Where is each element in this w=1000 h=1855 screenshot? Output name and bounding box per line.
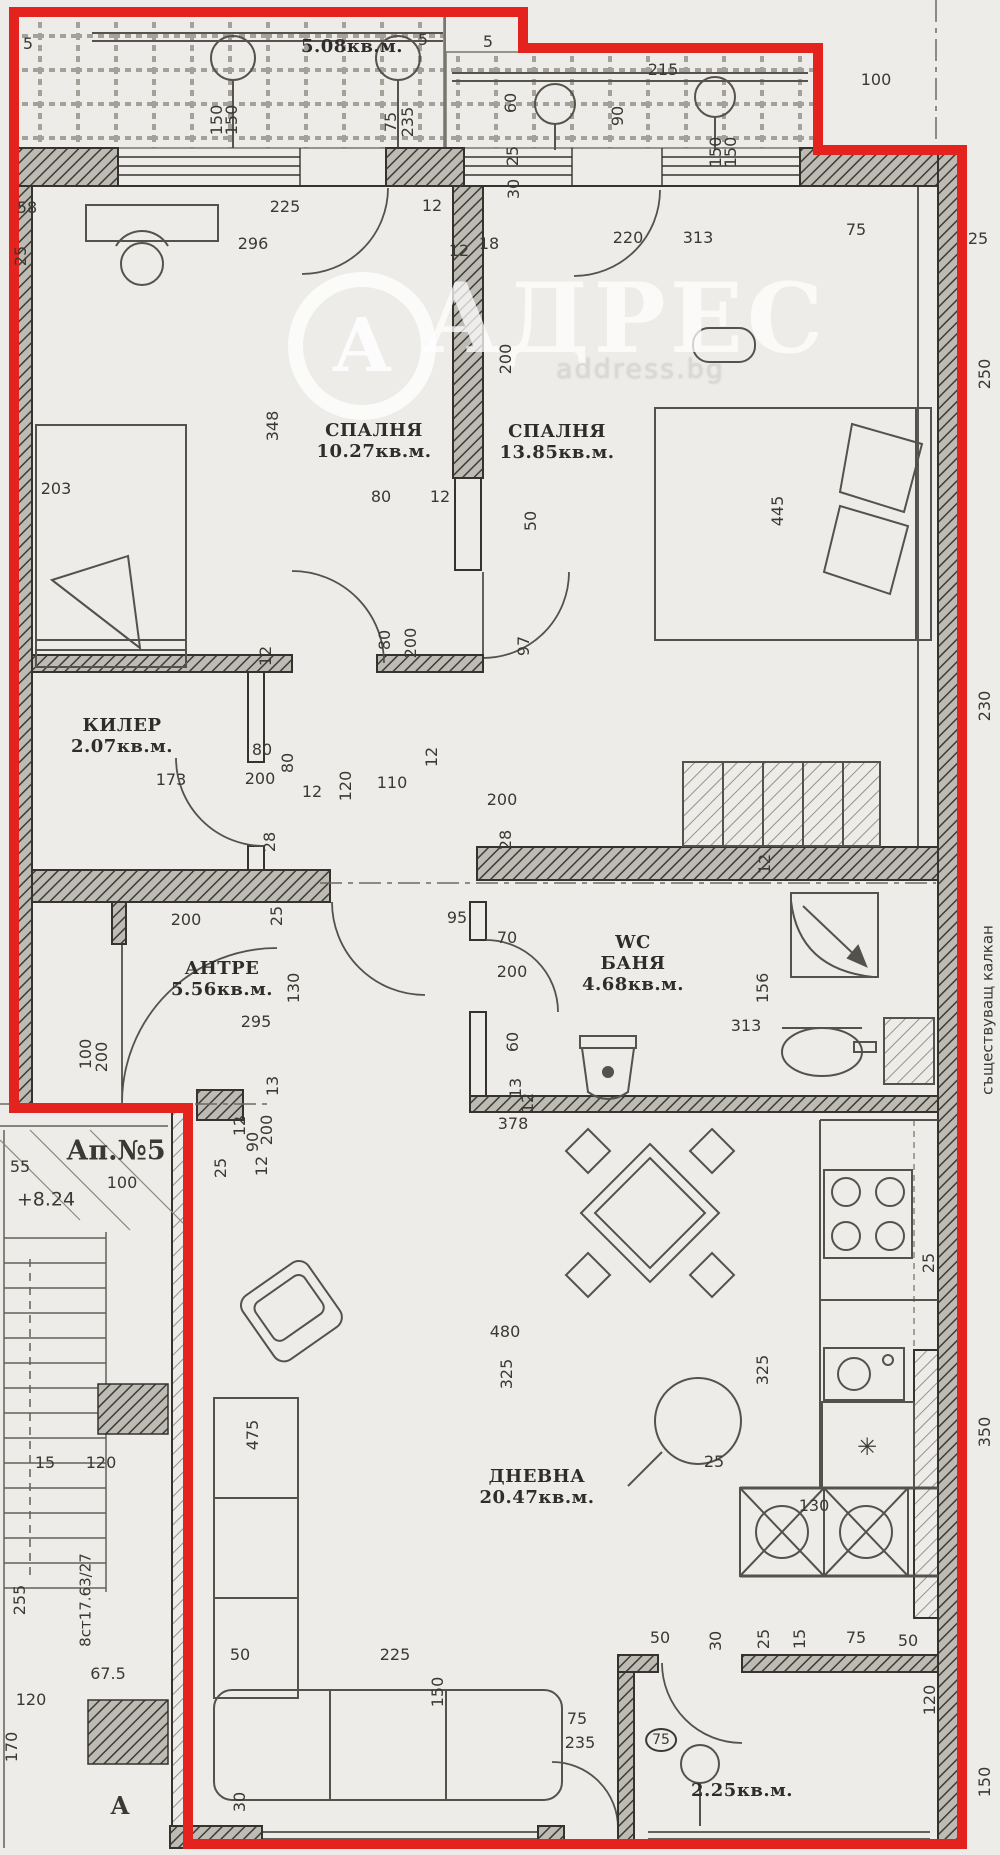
dim-label: 220	[613, 230, 644, 246]
room-label-line: 5.56кв.м.	[171, 979, 273, 1000]
dim-label: 12	[520, 1093, 536, 1113]
room-label-living-room: ДНЕВНА20.47кв.м.	[479, 1466, 594, 1508]
room-label-line: БАНЯ	[582, 953, 684, 974]
elevation-mark: +8.24	[17, 1191, 75, 1210]
room-label-bedroom-1: СПАЛНЯ10.27кв.м.	[316, 420, 431, 462]
room-label-line: 20.47кв.м.	[479, 1487, 594, 1508]
stairs-note: 8ст17.63/27	[79, 1553, 94, 1647]
room-label-line: 2.07кв.м.	[71, 736, 173, 757]
room-label-terrace: 5.08кв.м.	[301, 36, 403, 57]
dim-label: 200	[245, 771, 276, 787]
dim-label: 70	[497, 930, 517, 946]
dim-label: 75	[846, 222, 866, 238]
dim-label: 120	[86, 1455, 117, 1471]
room-label-line: 13.85кв.м.	[499, 442, 614, 463]
room-label-hallway: АНТРЕ5.56кв.м.	[171, 958, 273, 1000]
dim-label: 200	[498, 344, 514, 375]
dim-label: 12	[424, 747, 440, 767]
dim-label: 25	[921, 1253, 937, 1273]
room-label-line: 10.27кв.м.	[316, 441, 431, 462]
labels-layer: 5551501507523521560901501501002530582251…	[0, 0, 1000, 1855]
dim-label: 480	[490, 1324, 521, 1340]
dim-label: 30	[708, 1631, 724, 1651]
dim-label: 325	[499, 1359, 515, 1390]
dim-label: 80	[377, 630, 393, 650]
room-label-line: 2.25кв.м.	[691, 1780, 793, 1801]
dim-label: 350	[977, 1417, 993, 1448]
dim-label: 313	[731, 1018, 762, 1034]
dim-label: 30	[232, 1792, 248, 1812]
dim-label: 295	[241, 1014, 272, 1030]
dim-label: 170	[4, 1732, 20, 1763]
dim-label: 156	[755, 973, 771, 1004]
dim-label: 12	[422, 198, 442, 214]
dim-label: 215	[648, 62, 679, 78]
room-label-line: 4.68кв.м.	[582, 974, 684, 995]
dim-label: 200	[94, 1042, 110, 1073]
floor-plan-page: А АДРЕС address.bg 555150150752352156090…	[0, 0, 1000, 1855]
section-mark: А	[110, 1794, 130, 1818]
room-label-balcony: 2.25кв.м.	[691, 1780, 793, 1801]
dim-label: 100	[107, 1175, 138, 1191]
dim-label: 313	[683, 230, 714, 246]
dim-label: 60	[505, 1032, 521, 1052]
fridge-symbol: ✳	[857, 1435, 877, 1459]
room-label-line: СПАЛНЯ	[499, 421, 614, 442]
dim-label: 475	[245, 1420, 261, 1451]
dim-label: 80	[280, 753, 296, 773]
dim-label: 15	[792, 1629, 808, 1649]
dim-label: 120	[338, 771, 354, 802]
dim-label: 348	[265, 411, 281, 442]
dim-label: 130	[286, 973, 302, 1004]
room-label-line: КИЛЕР	[71, 715, 173, 736]
dim-label: 225	[380, 1647, 411, 1663]
dim-label: 130	[799, 1498, 830, 1514]
dim-label: 25	[269, 906, 285, 926]
apartment-number: Ап.№5	[66, 1138, 165, 1165]
existing-wall-note: съществуващ калкан	[981, 925, 996, 1095]
dim-label: 12	[302, 784, 322, 800]
dim-label: 50	[898, 1633, 918, 1649]
dim-label: 5	[23, 36, 33, 52]
dim-label: 5	[483, 34, 493, 50]
dim-label: 97	[516, 636, 532, 656]
dim-label: 200	[171, 912, 202, 928]
dim-label: 150	[430, 1677, 446, 1708]
dim-label: 150	[723, 137, 739, 168]
dim-label: 200	[487, 792, 518, 808]
dim-label: 12	[254, 1156, 270, 1176]
dim-label: 25	[756, 1629, 772, 1649]
dim-label: 25	[968, 231, 988, 247]
dim-label: 15	[35, 1455, 55, 1471]
dim-label: 325	[755, 1355, 771, 1386]
room-label-line: WC	[582, 932, 684, 953]
dim-label: 60	[503, 93, 519, 113]
dim-label: 12	[430, 489, 450, 505]
room-label-closet: КИЛЕР2.07кв.м.	[71, 715, 173, 757]
dim-label: 296	[238, 236, 269, 252]
dim-label: 110	[377, 775, 408, 791]
dim-label: 25	[704, 1454, 724, 1470]
dim-label: 12	[258, 646, 274, 666]
dim-label: 203	[41, 481, 72, 497]
dim-label: 235	[565, 1735, 596, 1751]
dim-label: 55	[10, 1159, 30, 1175]
dim-label: 255	[12, 1585, 28, 1616]
dim-label: 150	[977, 1767, 993, 1798]
dim-label: 75	[383, 112, 399, 132]
dim-label: 150	[224, 105, 240, 136]
room-label-line: ДНЕВНА	[479, 1466, 594, 1487]
dim-label: 25	[213, 1158, 229, 1178]
dim-label: 75	[645, 1728, 677, 1752]
dim-label: 58	[17, 200, 37, 216]
dim-label: 200	[403, 628, 419, 659]
dim-label: 28	[498, 830, 514, 850]
dim-label: 25	[13, 246, 29, 266]
room-label-bedroom-2: СПАЛНЯ13.85кв.м.	[499, 421, 614, 463]
dim-label: 5	[418, 32, 428, 48]
dim-label: 445	[770, 496, 786, 527]
dim-label: 12	[449, 243, 469, 259]
dim-label: 95	[447, 910, 467, 926]
room-label-line: 5.08кв.м.	[301, 36, 403, 57]
dim-label: 235	[400, 107, 416, 138]
dim-label: 173	[156, 772, 187, 788]
dim-label: 13	[265, 1076, 281, 1096]
dim-label: 18	[479, 236, 499, 252]
dim-label: 25	[505, 146, 521, 166]
dim-label: 67.5	[90, 1666, 126, 1682]
dim-label: 100	[861, 72, 892, 88]
room-label-bathroom: WCБАНЯ4.68кв.м.	[582, 932, 684, 995]
dim-label: 12	[757, 854, 773, 874]
dim-label: 50	[523, 511, 539, 531]
dim-label: 75	[567, 1711, 587, 1727]
dim-label: 50	[230, 1647, 250, 1663]
dim-label: 80	[252, 742, 272, 758]
dim-label: 200	[497, 964, 528, 980]
dim-label: 230	[977, 691, 993, 722]
dim-label: 225	[270, 199, 301, 215]
dim-label: 50	[650, 1630, 670, 1646]
dim-label: 28	[262, 832, 278, 852]
dim-label: 250	[977, 359, 993, 390]
dim-label: 30	[506, 179, 522, 199]
dim-label: 378	[498, 1116, 529, 1132]
dim-label: 75	[846, 1630, 866, 1646]
room-label-line: СПАЛНЯ	[316, 420, 431, 441]
room-label-line: АНТРЕ	[171, 958, 273, 979]
dim-label: 120	[16, 1692, 47, 1708]
dim-label: 90	[610, 106, 626, 126]
dim-label: 120	[922, 1685, 938, 1716]
dim-label: 80	[371, 489, 391, 505]
dim-label: 200	[259, 1115, 275, 1146]
